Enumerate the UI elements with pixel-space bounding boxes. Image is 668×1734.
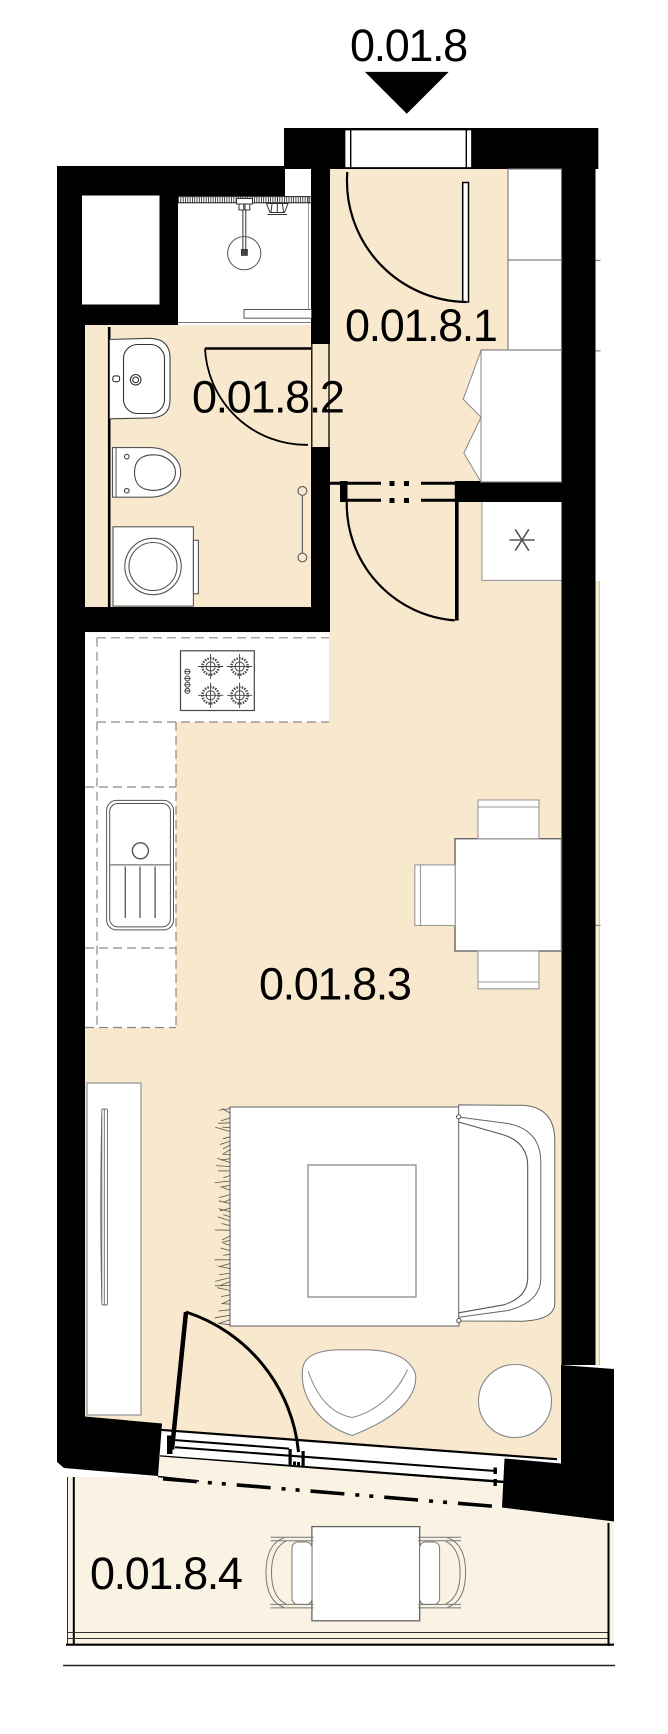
svg-text:0.01.8: 0.01.8: [350, 20, 467, 71]
svg-text:0.01.8.3: 0.01.8.3: [259, 959, 411, 1010]
svg-text:0.01.8.2: 0.01.8.2: [192, 372, 343, 423]
svg-text:0.01.8.4: 0.01.8.4: [90, 1548, 242, 1599]
svg-text:0.01.8.1: 0.01.8.1: [345, 300, 496, 351]
